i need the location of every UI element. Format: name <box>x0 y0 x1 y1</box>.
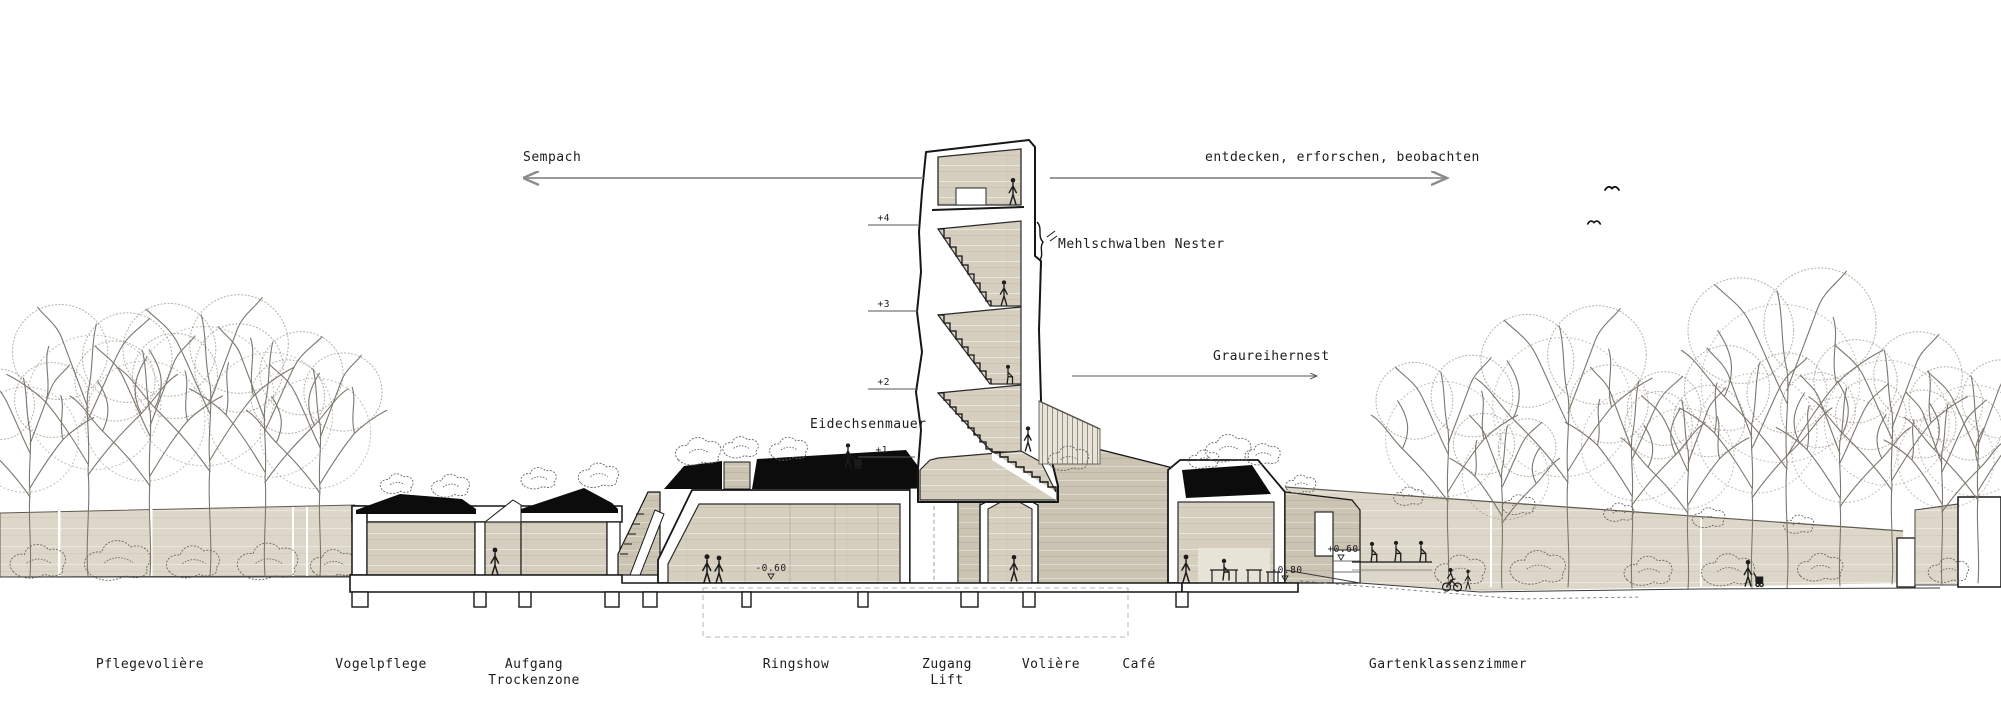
right-hillside-band <box>1285 487 1903 591</box>
bush <box>675 438 720 466</box>
bush <box>521 468 556 489</box>
label-eidechsenmauer: Eidechsenmauer <box>810 417 927 432</box>
room-label-aufgang: Aufgang <box>505 657 563 672</box>
room-vogelpflege-2 <box>521 522 607 575</box>
cafe-building <box>1168 460 1285 583</box>
bush <box>578 463 618 487</box>
room-label-vogelpflege: Vogelpflege <box>335 657 427 672</box>
room-label-voliere: Volière <box>1022 657 1080 672</box>
label-graureiher: Graureihernest <box>1213 349 1330 364</box>
level-plus1: +1 <box>876 445 888 456</box>
underground-outline <box>703 588 1128 637</box>
bush <box>432 474 470 497</box>
bird-icon <box>1588 221 1601 224</box>
elev-cafe: -0.80 <box>1271 565 1302 576</box>
left-wing-building <box>352 488 622 575</box>
bird-icon <box>1605 187 1619 190</box>
level-plus3: +3 <box>878 299 890 310</box>
bush <box>1205 435 1250 463</box>
level-plus2: +2 <box>878 377 890 388</box>
section-canvas: Sempach entdecken, erforschen, beobachte… <box>0 0 2001 721</box>
room-label-trockenzone: Trockenzone <box>488 673 580 688</box>
room-label-cafe: Café <box>1122 657 1155 672</box>
label-sempach: Sempach <box>523 150 581 165</box>
observation-tower <box>916 140 1058 502</box>
room-labels: Pflegevolière Vogelpflege Aufgang Trocke… <box>96 657 1527 688</box>
tower-base <box>920 451 1056 500</box>
room-label-lift: Lift <box>930 673 963 688</box>
elev-ringshow: -0.60 <box>755 563 786 574</box>
room-vogelpflege-1 <box>367 522 475 575</box>
level-plus4: +4 <box>878 213 890 224</box>
room-label-pflegevoliere: Pflegevolière <box>96 657 204 672</box>
room-label-ringshow: Ringshow <box>763 657 830 672</box>
architectural-section-drawing: Sempach entdecken, erforschen, beobachte… <box>0 0 2001 721</box>
voliere-room <box>980 490 1038 583</box>
far-right-structure <box>1897 497 2001 587</box>
label-activities: entdecken, erforschen, beobachten <box>1205 150 1480 165</box>
green-roof-wedge <box>521 488 618 513</box>
skylight-beam <box>724 462 750 489</box>
ringshow-hall <box>658 450 918 583</box>
green-roof-wedge <box>356 494 476 514</box>
room-label-zugang: Zugang <box>922 657 972 672</box>
elev-terrace: +0.60 <box>1327 544 1358 555</box>
bush <box>723 437 758 458</box>
green-roof-wedge <box>664 461 722 489</box>
left-aviary-band <box>0 505 355 577</box>
heron-aviary <box>1039 401 1100 470</box>
room-label-gartenklassenzimmer: Gartenklassenzimmer <box>1369 657 1527 672</box>
green-roof-wedge <box>752 450 918 489</box>
label-mehlschwalben: Mehlschwalben Nester <box>1058 237 1225 252</box>
bush <box>380 474 413 494</box>
